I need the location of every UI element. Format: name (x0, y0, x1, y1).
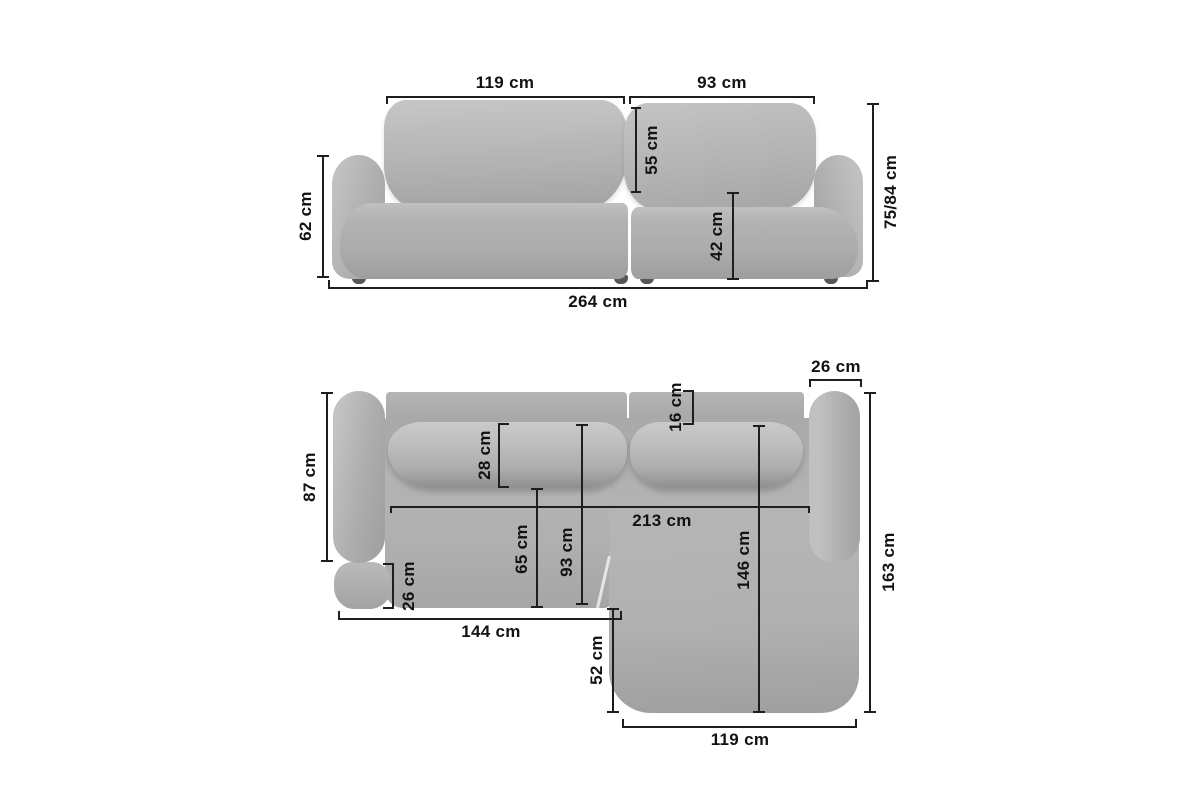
dim-line (390, 506, 810, 508)
dim-tick (620, 611, 622, 619)
dim-tick (727, 192, 739, 194)
front-left-back-cushion (384, 100, 627, 210)
dim-line (622, 726, 857, 728)
dim-label: 62 cm (296, 191, 316, 241)
dim-tick (386, 96, 388, 104)
dim-label: 26 cm (811, 357, 861, 377)
dim-tick (321, 560, 333, 562)
dim-label: 28 cm (475, 430, 495, 480)
dim-label: 55 cm (642, 125, 662, 175)
dim-tick (317, 155, 329, 157)
dim-tick (867, 103, 879, 105)
dim-label: 146 cm (734, 530, 754, 589)
dim-tick (607, 711, 619, 713)
dim-tick (809, 379, 811, 387)
dim-line (732, 192, 734, 280)
dim-tick (531, 488, 543, 490)
dim-tick (317, 276, 329, 278)
dim-tick (629, 96, 631, 104)
dim-label: 65 cm (512, 524, 532, 574)
dim-tick (622, 719, 624, 727)
dim-tick (753, 711, 765, 713)
dim-line (326, 392, 328, 562)
dim-label: 75/84 cm (881, 155, 901, 229)
dim-line (328, 287, 868, 289)
dim-line (536, 488, 538, 608)
dim-tick (623, 96, 625, 104)
dim-label: 26 cm (399, 561, 419, 611)
dim-label: 144 cm (461, 622, 520, 642)
dim-line (809, 379, 862, 381)
front-left-seat (340, 203, 628, 279)
dim-line (869, 392, 871, 713)
dim-tick (813, 96, 815, 104)
plan-right-armrest (809, 391, 860, 563)
dim-tick (498, 486, 509, 488)
dim-line (386, 96, 625, 98)
dim-tick (390, 506, 392, 513)
dim-tick (576, 603, 588, 605)
dim-line (629, 96, 815, 98)
dim-label: 93 cm (557, 527, 577, 577)
plan-back-cushion-left (388, 422, 627, 488)
dim-label: 119 cm (711, 730, 770, 750)
plan-left-front-corner (334, 562, 392, 609)
dim-label: 52 cm (587, 635, 607, 685)
dim-tick (727, 278, 739, 280)
sofa-dimension-diagram: 119 cm 93 cm 55 cm 62 cm 42 (0, 0, 1200, 800)
dim-tick (498, 423, 509, 425)
dim-tick (383, 607, 394, 609)
dim-tick (753, 425, 765, 427)
dim-line (392, 563, 394, 609)
dim-label: 42 cm (707, 211, 727, 261)
dim-line (872, 103, 874, 282)
dim-tick (855, 719, 857, 727)
dim-tick (866, 280, 868, 288)
dim-tick (631, 191, 641, 193)
dim-tick (328, 280, 330, 288)
plan-back-cushion-right (630, 422, 803, 488)
dim-tick (383, 563, 394, 565)
dim-line (692, 390, 694, 425)
dim-line (758, 425, 760, 713)
dim-label: 93 cm (697, 73, 747, 93)
dim-line (581, 424, 583, 605)
dim-tick (808, 506, 810, 513)
dim-tick (631, 107, 641, 109)
dim-label: 213 cm (632, 511, 691, 531)
dim-tick (531, 606, 543, 608)
dim-line (498, 423, 500, 488)
dim-tick (338, 611, 340, 619)
dim-label: 87 cm (300, 452, 320, 502)
dim-label: 264 cm (568, 292, 627, 312)
dim-line (635, 107, 637, 193)
plan-left-armrest (333, 391, 385, 563)
dim-tick (607, 608, 619, 610)
dim-line (338, 618, 622, 620)
dim-tick (576, 424, 588, 426)
dim-label: 163 cm (879, 532, 899, 591)
dim-tick (321, 392, 333, 394)
dim-tick (867, 280, 879, 282)
dim-tick (864, 711, 876, 713)
dim-label: 16 cm (666, 382, 686, 432)
dim-tick (864, 392, 876, 394)
front-right-seat (631, 207, 858, 279)
dim-tick (860, 379, 862, 387)
dim-label: 119 cm (476, 73, 535, 93)
dim-line (612, 608, 614, 713)
dim-line (322, 155, 324, 278)
